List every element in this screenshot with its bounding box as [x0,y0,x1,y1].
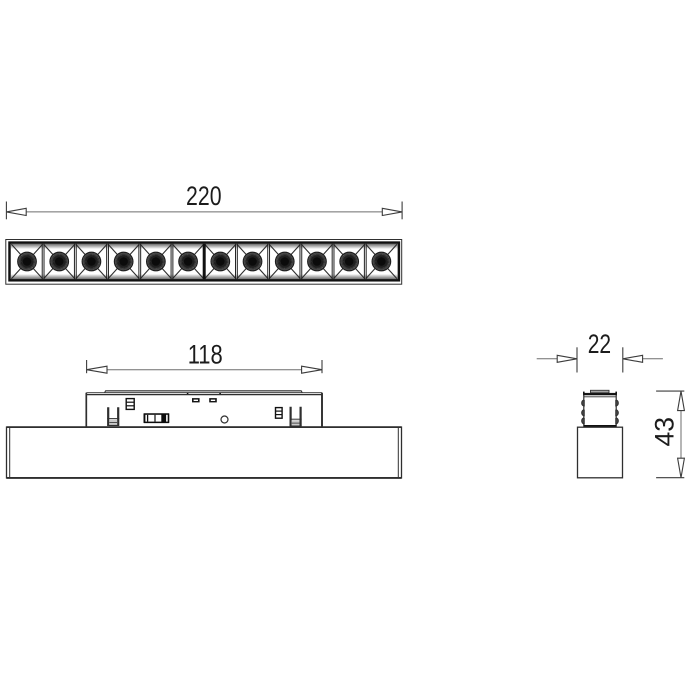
svg-text:43: 43 [650,417,680,447]
svg-text:118: 118 [188,339,223,369]
svg-text:220: 220 [186,181,222,211]
svg-text:22: 22 [588,329,611,359]
